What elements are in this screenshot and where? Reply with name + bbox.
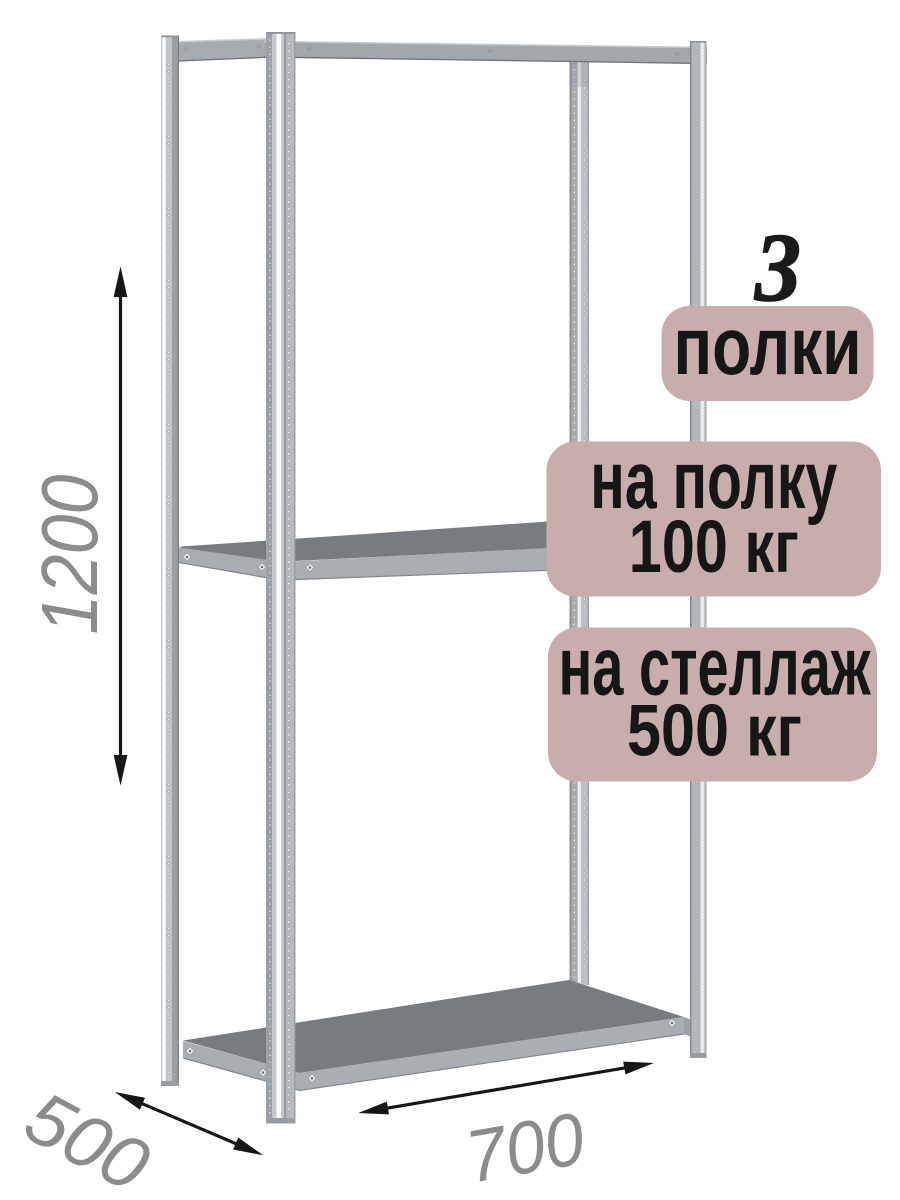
svg-text:1200: 1200: [25, 475, 114, 635]
svg-text:полки: полки: [674, 301, 862, 392]
svg-text:100 кг: 100 кг: [629, 505, 799, 588]
svg-text:500 кг: 500 кг: [627, 691, 802, 772]
